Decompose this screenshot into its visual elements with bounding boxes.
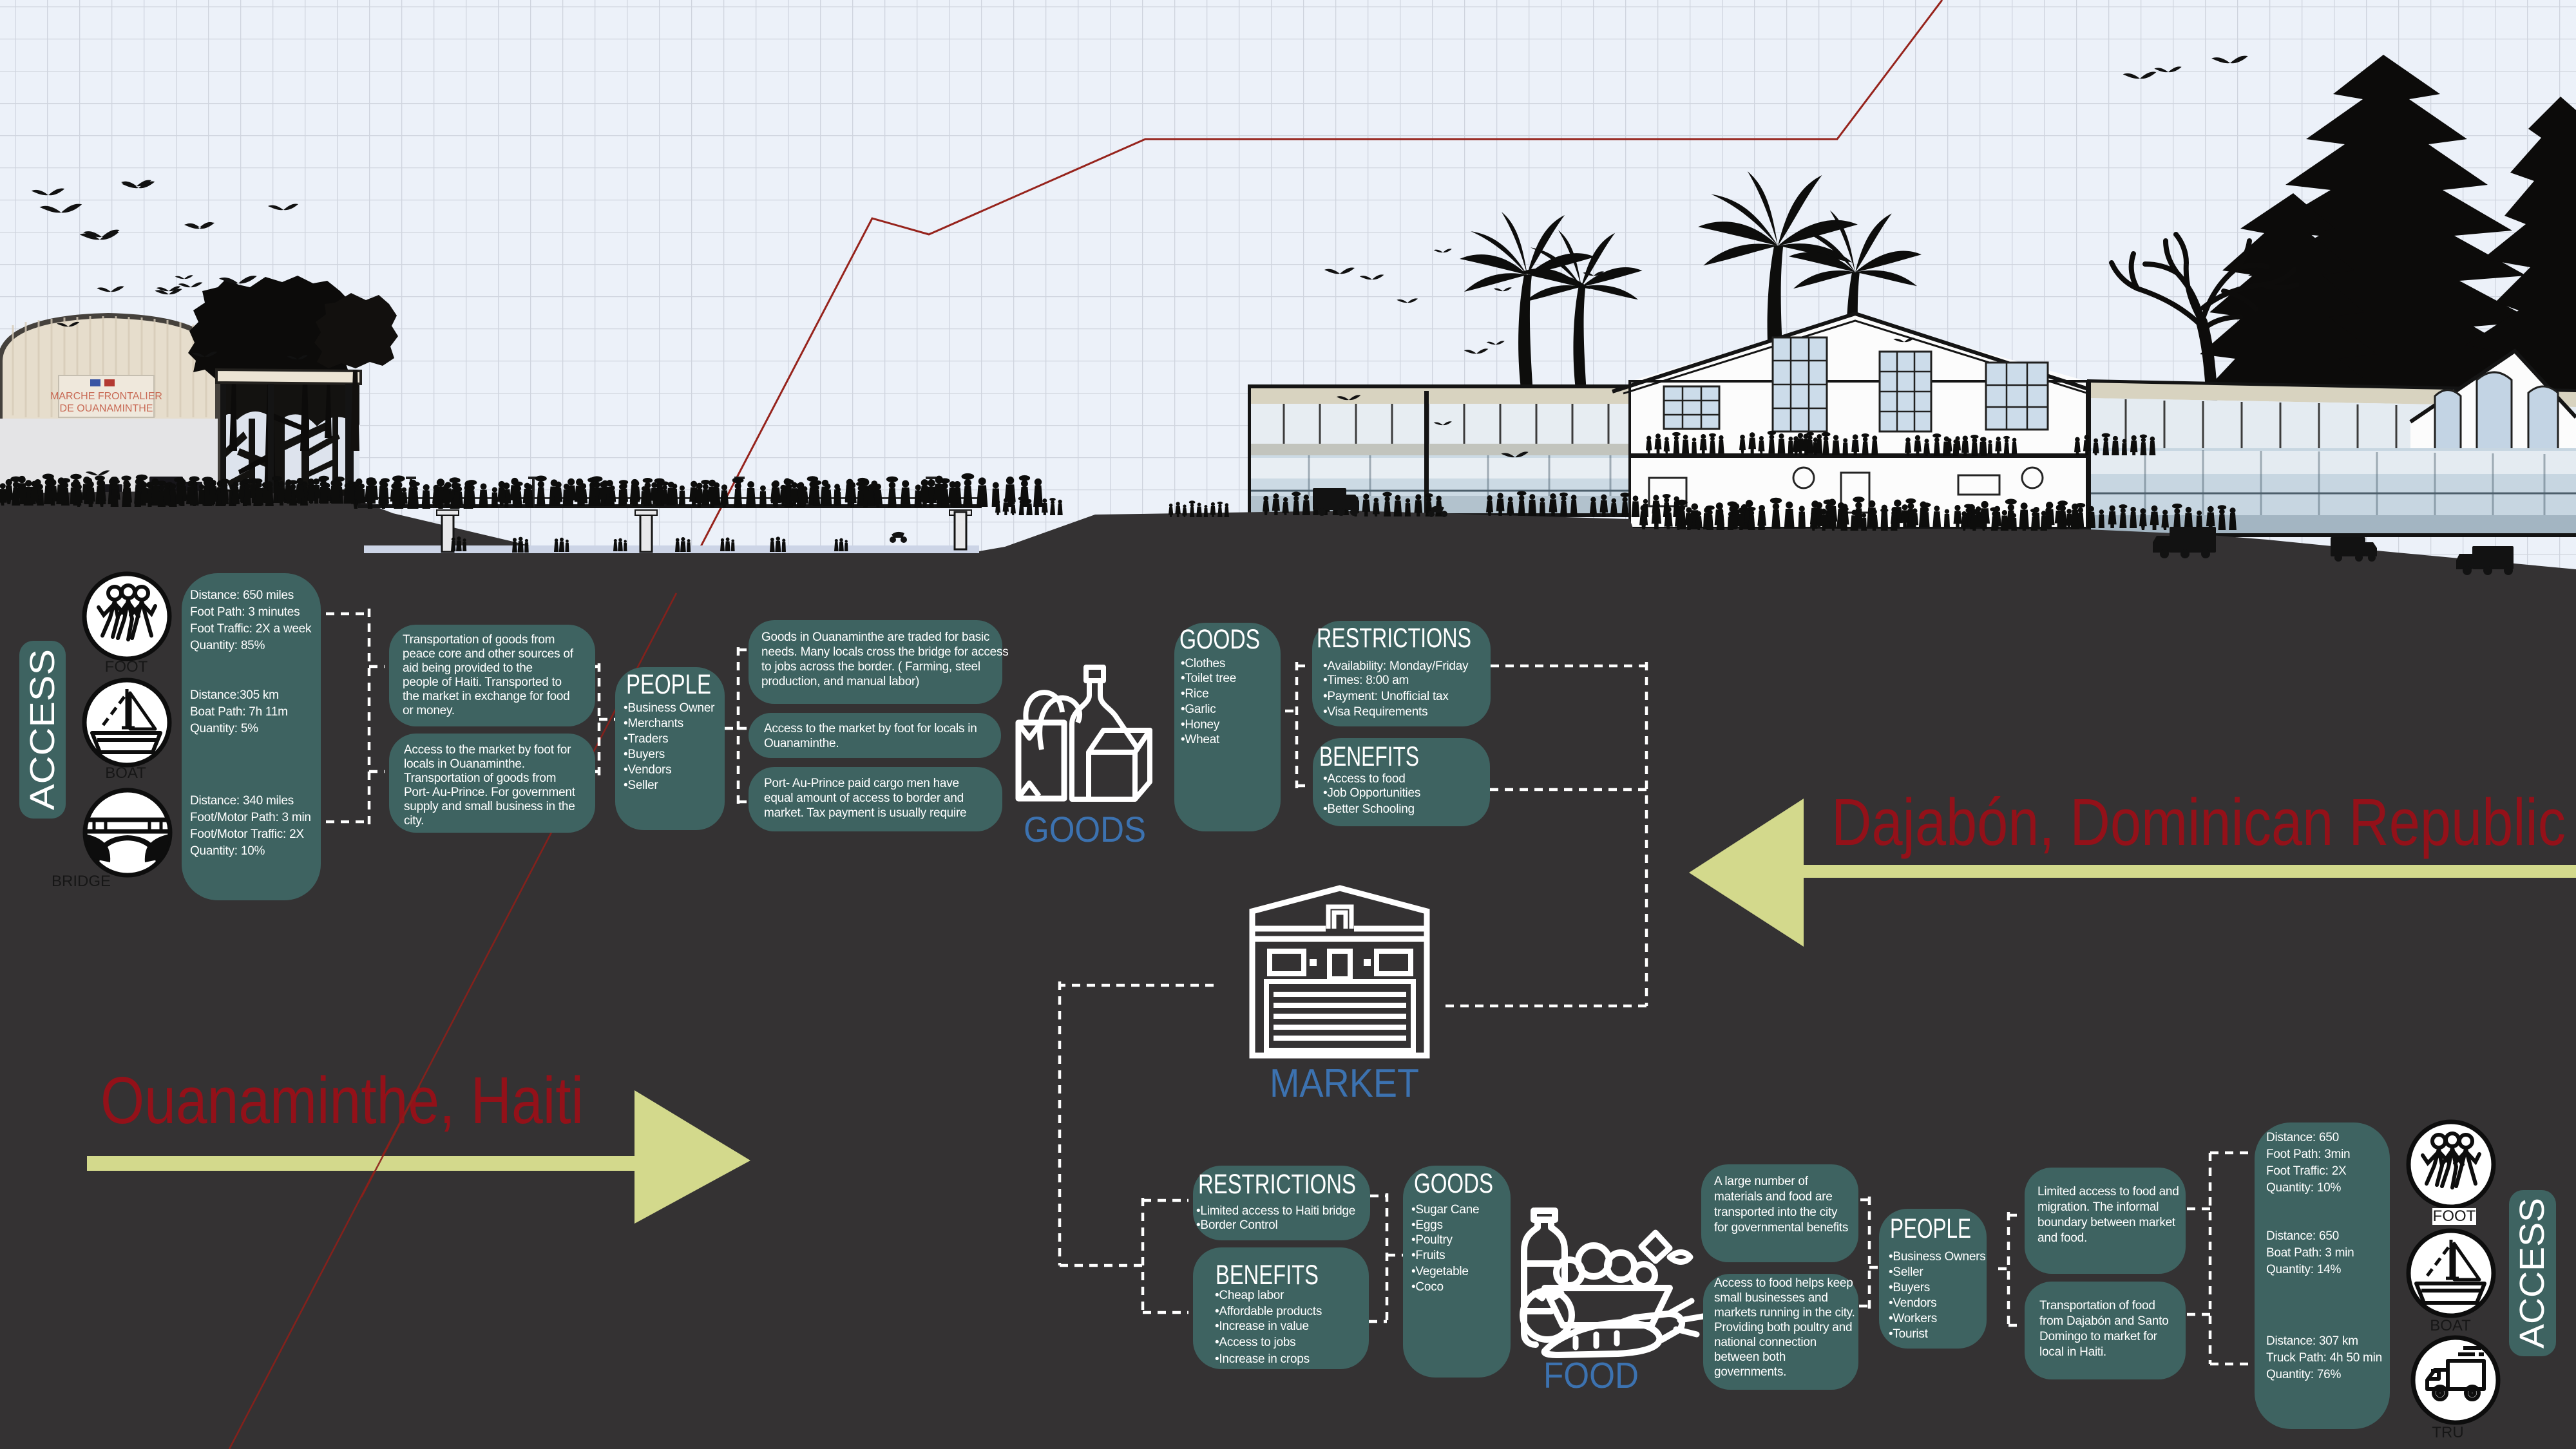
svg-text:FOOD: FOOD [1543,1355,1639,1396]
svg-text:ACCESS: ACCESS [2513,1198,2552,1349]
svg-text:transported into the city: transported into the city [1714,1206,1838,1219]
svg-text:GOODS: GOODS [1179,624,1260,655]
svg-text:TRU: TRU [2432,1424,2463,1441]
svg-text:equal amount of access to bord: equal amount of access to border and [764,791,964,805]
svg-text:FOOT: FOOT [2433,1207,2476,1225]
svg-text:•Workers: •Workers [1889,1312,1937,1325]
svg-text:RESTRICTIONS: RESTRICTIONS [1317,623,1471,654]
svg-text:MARKET: MARKET [1270,1061,1419,1106]
svg-text:Limited access to food and: Limited access to food and [2037,1185,2179,1198]
svg-text:GOODS: GOODS [1024,809,1146,849]
svg-text:Foot Path: 3 minutes: Foot Path: 3 minutes [190,605,300,619]
svg-text:Distance: 650: Distance: 650 [2266,1131,2339,1144]
svg-text:needs. Many locals cross the b: needs. Many locals cross the bridge for … [761,645,1008,659]
svg-text:city.: city. [404,814,424,828]
svg-text:for governmental benefits: for governmental benefits [1714,1221,1848,1235]
svg-text:Foot/Motor Traffic: 2X: Foot/Motor Traffic: 2X [190,828,304,841]
svg-text:•Clothes: •Clothes [1181,657,1225,670]
svg-text:Ouanaminthe.: Ouanaminthe. [764,737,839,750]
svg-text:Distance:305 km: Distance:305 km [190,688,279,702]
svg-text:•Better Schooling: •Better Schooling [1323,802,1415,816]
svg-text:Providing both poultry and: Providing both poultry and [1714,1321,1852,1334]
svg-text:•Seller: •Seller [624,779,658,792]
svg-text:•Cheap labor: •Cheap labor [1215,1289,1284,1302]
svg-text:•Traders: •Traders [624,732,668,746]
svg-text:to jobs across the border. ( F: to jobs across the border. ( Farming, st… [761,660,980,674]
svg-text:•Business Owners: •Business Owners [1889,1250,1986,1264]
svg-text:FOOT: FOOT [105,658,148,676]
svg-text:•Toilet tree: •Toilet tree [1181,672,1236,685]
svg-text:•Buyers: •Buyers [624,748,665,761]
svg-text:markets running in the city.: markets running in the city. [1714,1306,1855,1320]
svg-text:Port- Au-Prince paid cargo men: Port- Au-Prince paid cargo men have [764,777,959,790]
svg-text:PEOPLE: PEOPLE [1890,1213,1971,1244]
svg-text:Dajabón, Dominican Republic: Dajabón, Dominican Republic [1831,785,2566,859]
svg-text:Transportation of goods from: Transportation of goods from [403,633,555,647]
svg-text:•Rice: •Rice [1181,687,1208,701]
svg-text:local in Haiti.: local in Haiti. [2039,1345,2106,1359]
svg-text:from Dajabón and Santo: from Dajabón and Santo [2039,1314,2168,1328]
svg-text:Port- Au-Prince. For governmen: Port- Au-Prince. For government [404,786,576,799]
svg-text:BENEFITS: BENEFITS [1216,1260,1319,1291]
svg-text:MARCHE FRONTALIER: MARCHE FRONTALIER [50,391,162,402]
svg-text:small businesses and: small businesses and [1714,1291,1828,1305]
svg-text:•Sugar Cane: •Sugar Cane [1411,1203,1479,1217]
svg-text:BOAT: BOAT [105,764,146,782]
svg-text:•Payment: Unofficial tax: •Payment: Unofficial tax [1323,690,1449,703]
svg-text:•Business Owner: •Business Owner [624,701,715,715]
svg-text:Ouanaminthe, Haiti: Ouanaminthe, Haiti [100,1063,584,1137]
svg-text:•Coco: •Coco [1411,1280,1444,1294]
svg-text:Quantity: 5%: Quantity: 5% [190,722,258,735]
svg-text:•Border Control: •Border Control [1196,1218,1277,1232]
svg-text:people of Haiti. Transported t: people of Haiti. Transported to [403,676,562,689]
svg-text:Distance: 650 miles: Distance: 650 miles [190,589,294,602]
svg-text:•Fruits: •Fruits [1411,1249,1445,1262]
svg-text:Foot Traffic: 2X: Foot Traffic: 2X [2266,1164,2347,1178]
svg-text:Quantity: 10%: Quantity: 10% [2266,1181,2341,1195]
svg-text:ACCESS: ACCESS [23,649,62,810]
svg-text:Quantity: 85%: Quantity: 85% [190,639,265,652]
svg-text:Quantity: 14%: Quantity: 14% [2266,1263,2341,1276]
svg-text:•Eggs: •Eggs [1411,1218,1443,1232]
svg-text:supply and small business in t: supply and small business in the [404,800,575,813]
svg-text:Goods in Ouanaminthe are trade: Goods in Ouanaminthe are traded for basi… [761,630,989,644]
svg-text:BRIDGE: BRIDGE [52,873,111,890]
svg-text:governments.: governments. [1714,1365,1786,1379]
svg-text:•Job Opportunities: •Job Opportunities [1323,786,1420,800]
svg-text:•Access to food: •Access to food [1323,772,1406,786]
svg-text:locals in Ouanaminthe.: locals in Ouanaminthe. [404,757,525,771]
svg-text:boundary between market: boundary between market [2037,1216,2176,1229]
svg-text:•Seller: •Seller [1889,1265,1923,1279]
svg-text:•Merchants: •Merchants [624,717,683,730]
svg-text:Quantity: 76%: Quantity: 76% [2266,1368,2341,1381]
svg-text:Quantity: 10%: Quantity: 10% [190,844,265,858]
svg-text:materials and food are: materials and food are [1714,1190,1833,1204]
svg-text:•Poultry: •Poultry [1411,1233,1453,1247]
svg-text:•Increase in crops: •Increase in crops [1215,1352,1310,1366]
svg-text:•Tourist: •Tourist [1889,1327,1929,1341]
svg-text:•Vendors: •Vendors [1889,1296,1936,1310]
svg-text:peace core and other sources o: peace core and other sources of [403,647,574,661]
svg-text:Foot Traffic: 2X a week: Foot Traffic: 2X a week [190,622,312,636]
svg-text:market. Tax payment is usually: market. Tax payment is usually require [764,806,966,820]
svg-text:between both: between both [1714,1350,1786,1364]
svg-text:•Limited access to Haiti bridg: •Limited access to Haiti bridge [1196,1204,1355,1218]
svg-text:PEOPLE: PEOPLE [626,669,711,700]
svg-text:Domingo to market for: Domingo to market for [2039,1330,2158,1343]
svg-text:Foot Path: 3min: Foot Path: 3min [2266,1148,2350,1161]
svg-text:BENEFITS: BENEFITS [1319,741,1419,772]
svg-text:•Buyers: •Buyers [1889,1281,1930,1294]
svg-text:or money.: or money. [403,704,455,717]
svg-text:Truck Path: 4h 50 min: Truck Path: 4h 50 min [2266,1351,2382,1365]
svg-text:•Vegetable: •Vegetable [1411,1265,1469,1278]
svg-text:and food.: and food. [2037,1231,2087,1245]
svg-text:Transportation of goods from: Transportation of goods from [404,772,556,785]
svg-text:production, and manual labor): production, and manual labor) [761,675,919,688]
svg-text:•Availability: Monday/Friday: •Availability: Monday/Friday [1323,659,1469,673]
svg-text:RESTRICTIONS: RESTRICTIONS [1198,1169,1356,1200]
svg-text:•Visa Requirements: •Visa Requirements [1323,705,1427,719]
svg-text:Boat Path: 7h 11m: Boat Path: 7h 11m [190,705,288,719]
svg-text:Distance: 340 miles: Distance: 340 miles [190,794,294,808]
svg-text:GOODS: GOODS [1414,1168,1493,1199]
svg-text:Distance: 307 km: Distance: 307 km [2266,1334,2358,1348]
svg-text:•Garlic: •Garlic [1181,703,1216,716]
svg-text:the market in exchange for foo: the market in exchange for food [403,690,569,703]
svg-text:•Honey: •Honey [1181,718,1220,732]
svg-text:Boat Path: 3 min: Boat Path: 3 min [2266,1246,2354,1260]
svg-text:Access to the market by foot f: Access to the market by foot for locals … [764,722,977,735]
svg-text:•Affordable products: •Affordable products [1215,1305,1322,1318]
svg-text:migration. The informal: migration. The informal [2037,1200,2159,1214]
svg-text:Foot/Motor Path: 3 min: Foot/Motor Path: 3 min [190,811,311,824]
svg-text:•Access to jobs: •Access to jobs [1215,1336,1295,1349]
svg-text:national connection: national connection [1714,1336,1817,1349]
svg-text:aid being provided to the: aid being provided to the [403,661,533,675]
svg-text:DE OUANAMINTHE: DE OUANAMINTHE [60,403,153,414]
svg-text:Distance: 650: Distance: 650 [2266,1229,2339,1243]
svg-text:BOAT: BOAT [2430,1317,2471,1334]
svg-text:A large number of: A large number of [1714,1175,1809,1188]
svg-text:•Vendors: •Vendors [624,763,671,777]
svg-text:•Increase in value: •Increase in value [1215,1320,1309,1333]
svg-text:Access to the market by foot f: Access to the market by foot for [404,743,571,757]
svg-text:•Times: 8:00 am: •Times: 8:00 am [1323,674,1409,687]
svg-text:Access to food helps keep: Access to food helps keep [1714,1276,1853,1290]
svg-text:Transportation of food: Transportation of food [2039,1299,2155,1312]
svg-text:•Wheat: •Wheat [1181,733,1220,746]
